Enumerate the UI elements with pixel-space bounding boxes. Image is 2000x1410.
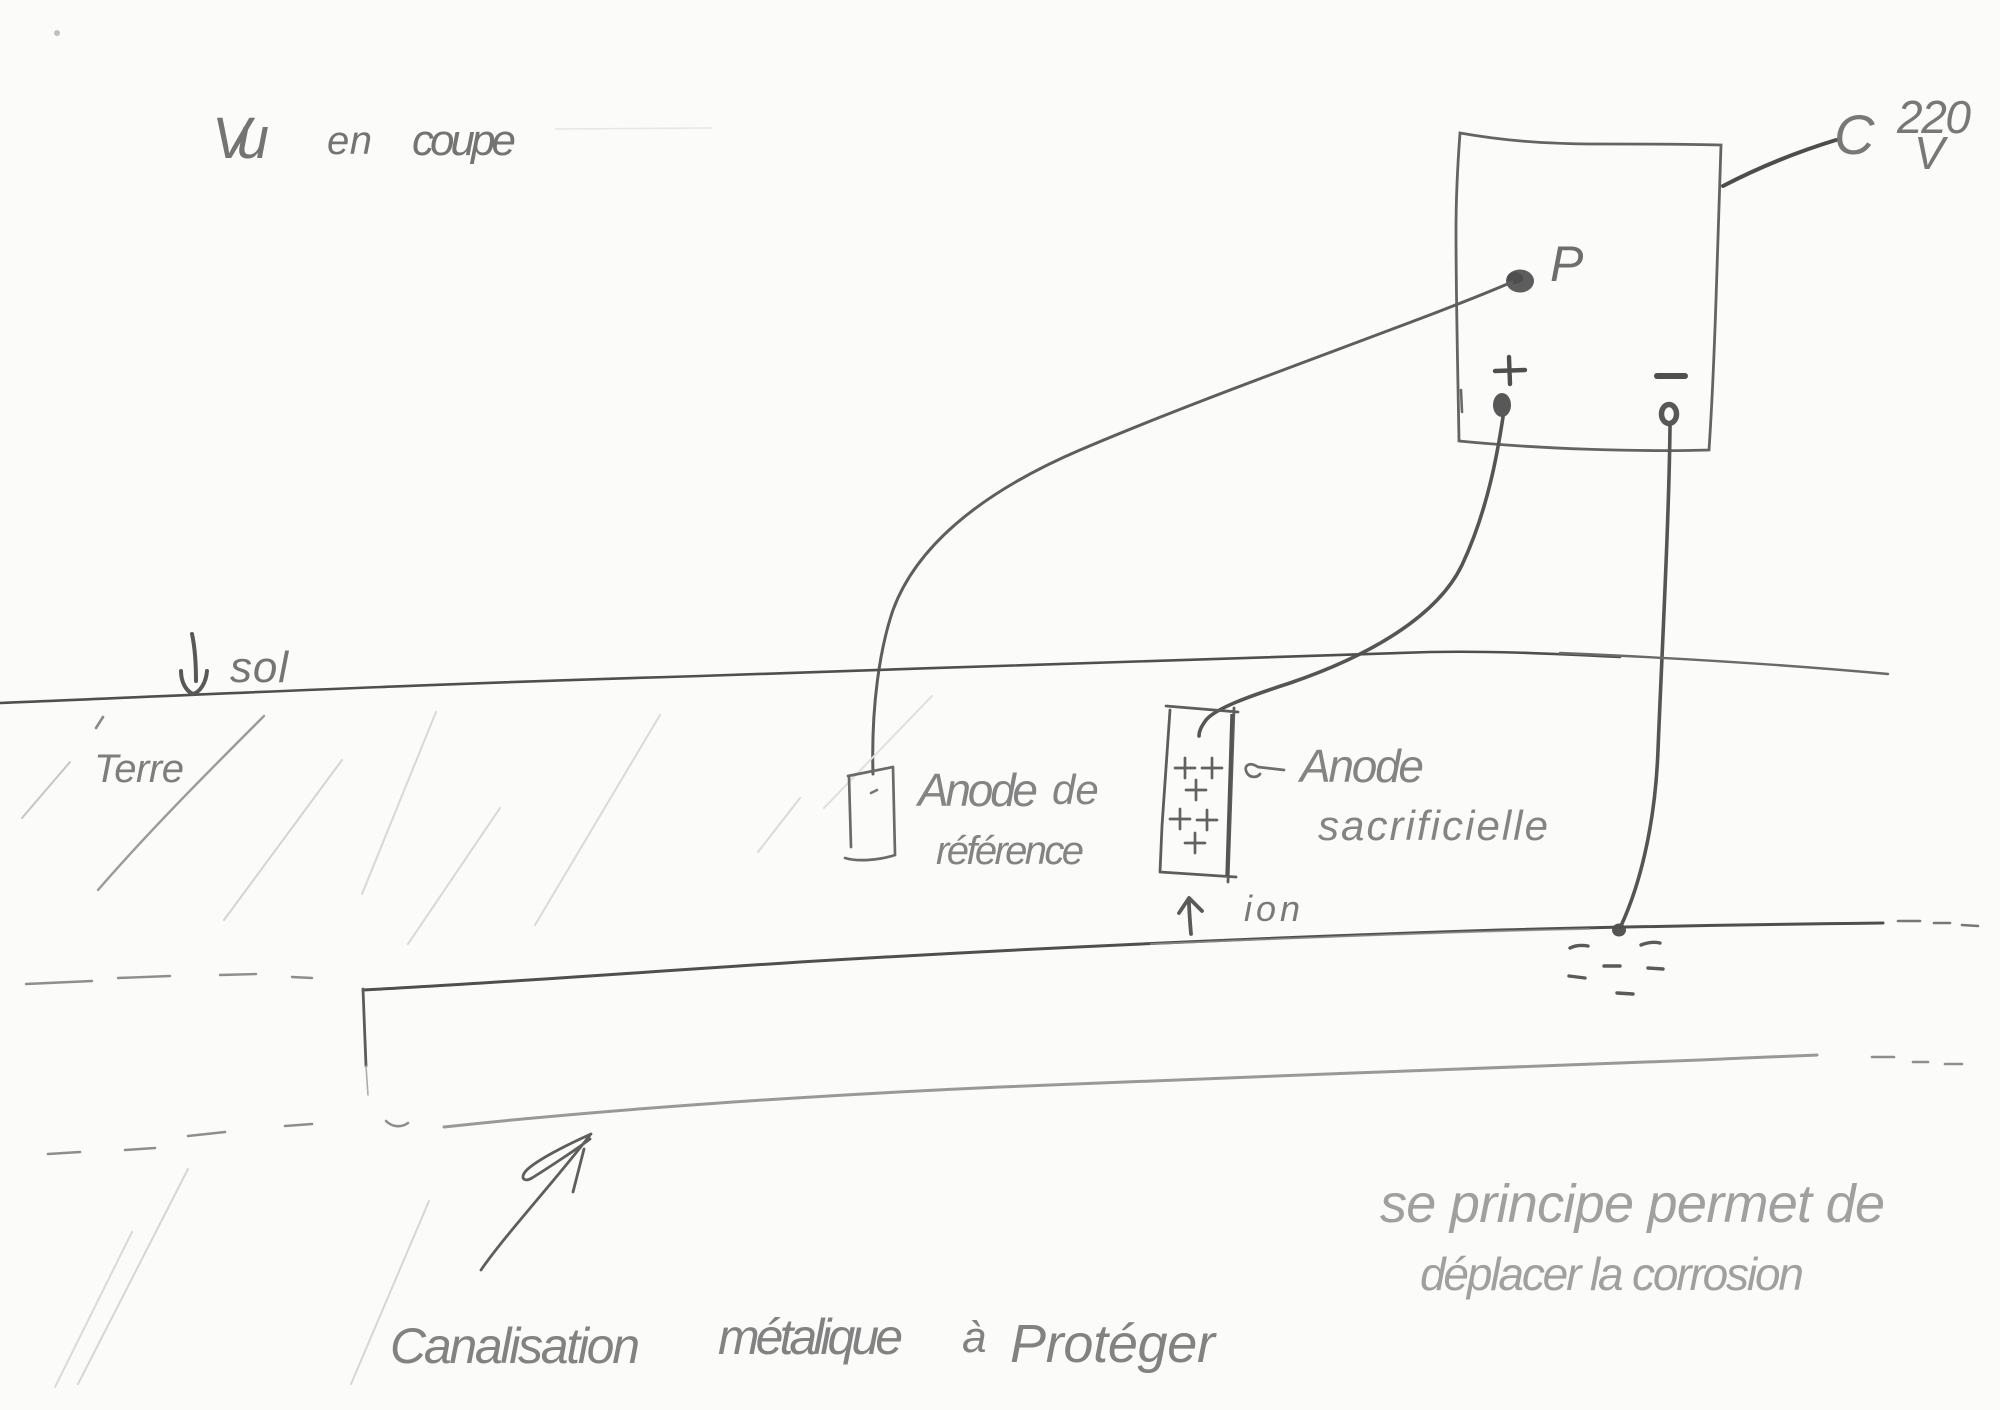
svg-text:C: C: [1834, 103, 1875, 166]
svg-text:déplacer la corrosion: déplacer la corrosion: [1420, 1248, 1804, 1300]
svg-text:coupe: coupe: [412, 116, 516, 165]
svg-text:référence: référence: [936, 829, 1084, 873]
svg-text:sol: sol: [230, 643, 289, 692]
svg-text:en: en: [327, 119, 372, 163]
svg-text:de: de: [1052, 766, 1099, 813]
svg-text:métalique: métalique: [718, 1309, 903, 1365]
svg-text:Protéger: Protéger: [1010, 1314, 1217, 1374]
svg-text:Canalisation: Canalisation: [390, 1318, 640, 1374]
svg-text:V: V: [1914, 127, 1949, 179]
svg-text:P: P: [1550, 236, 1584, 292]
svg-text:Terre: Terre: [94, 747, 184, 791]
svg-text:Anode: Anode: [1297, 740, 1424, 792]
svg-text:Anode: Anode: [915, 764, 1038, 816]
svg-text:sacrificielle: sacrificielle: [1318, 802, 1548, 849]
svg-text:à: à: [962, 1313, 986, 1362]
svg-text:se principe permet de: se principe permet de: [1380, 1174, 1885, 1234]
svg-text:Vu: Vu: [212, 106, 269, 171]
